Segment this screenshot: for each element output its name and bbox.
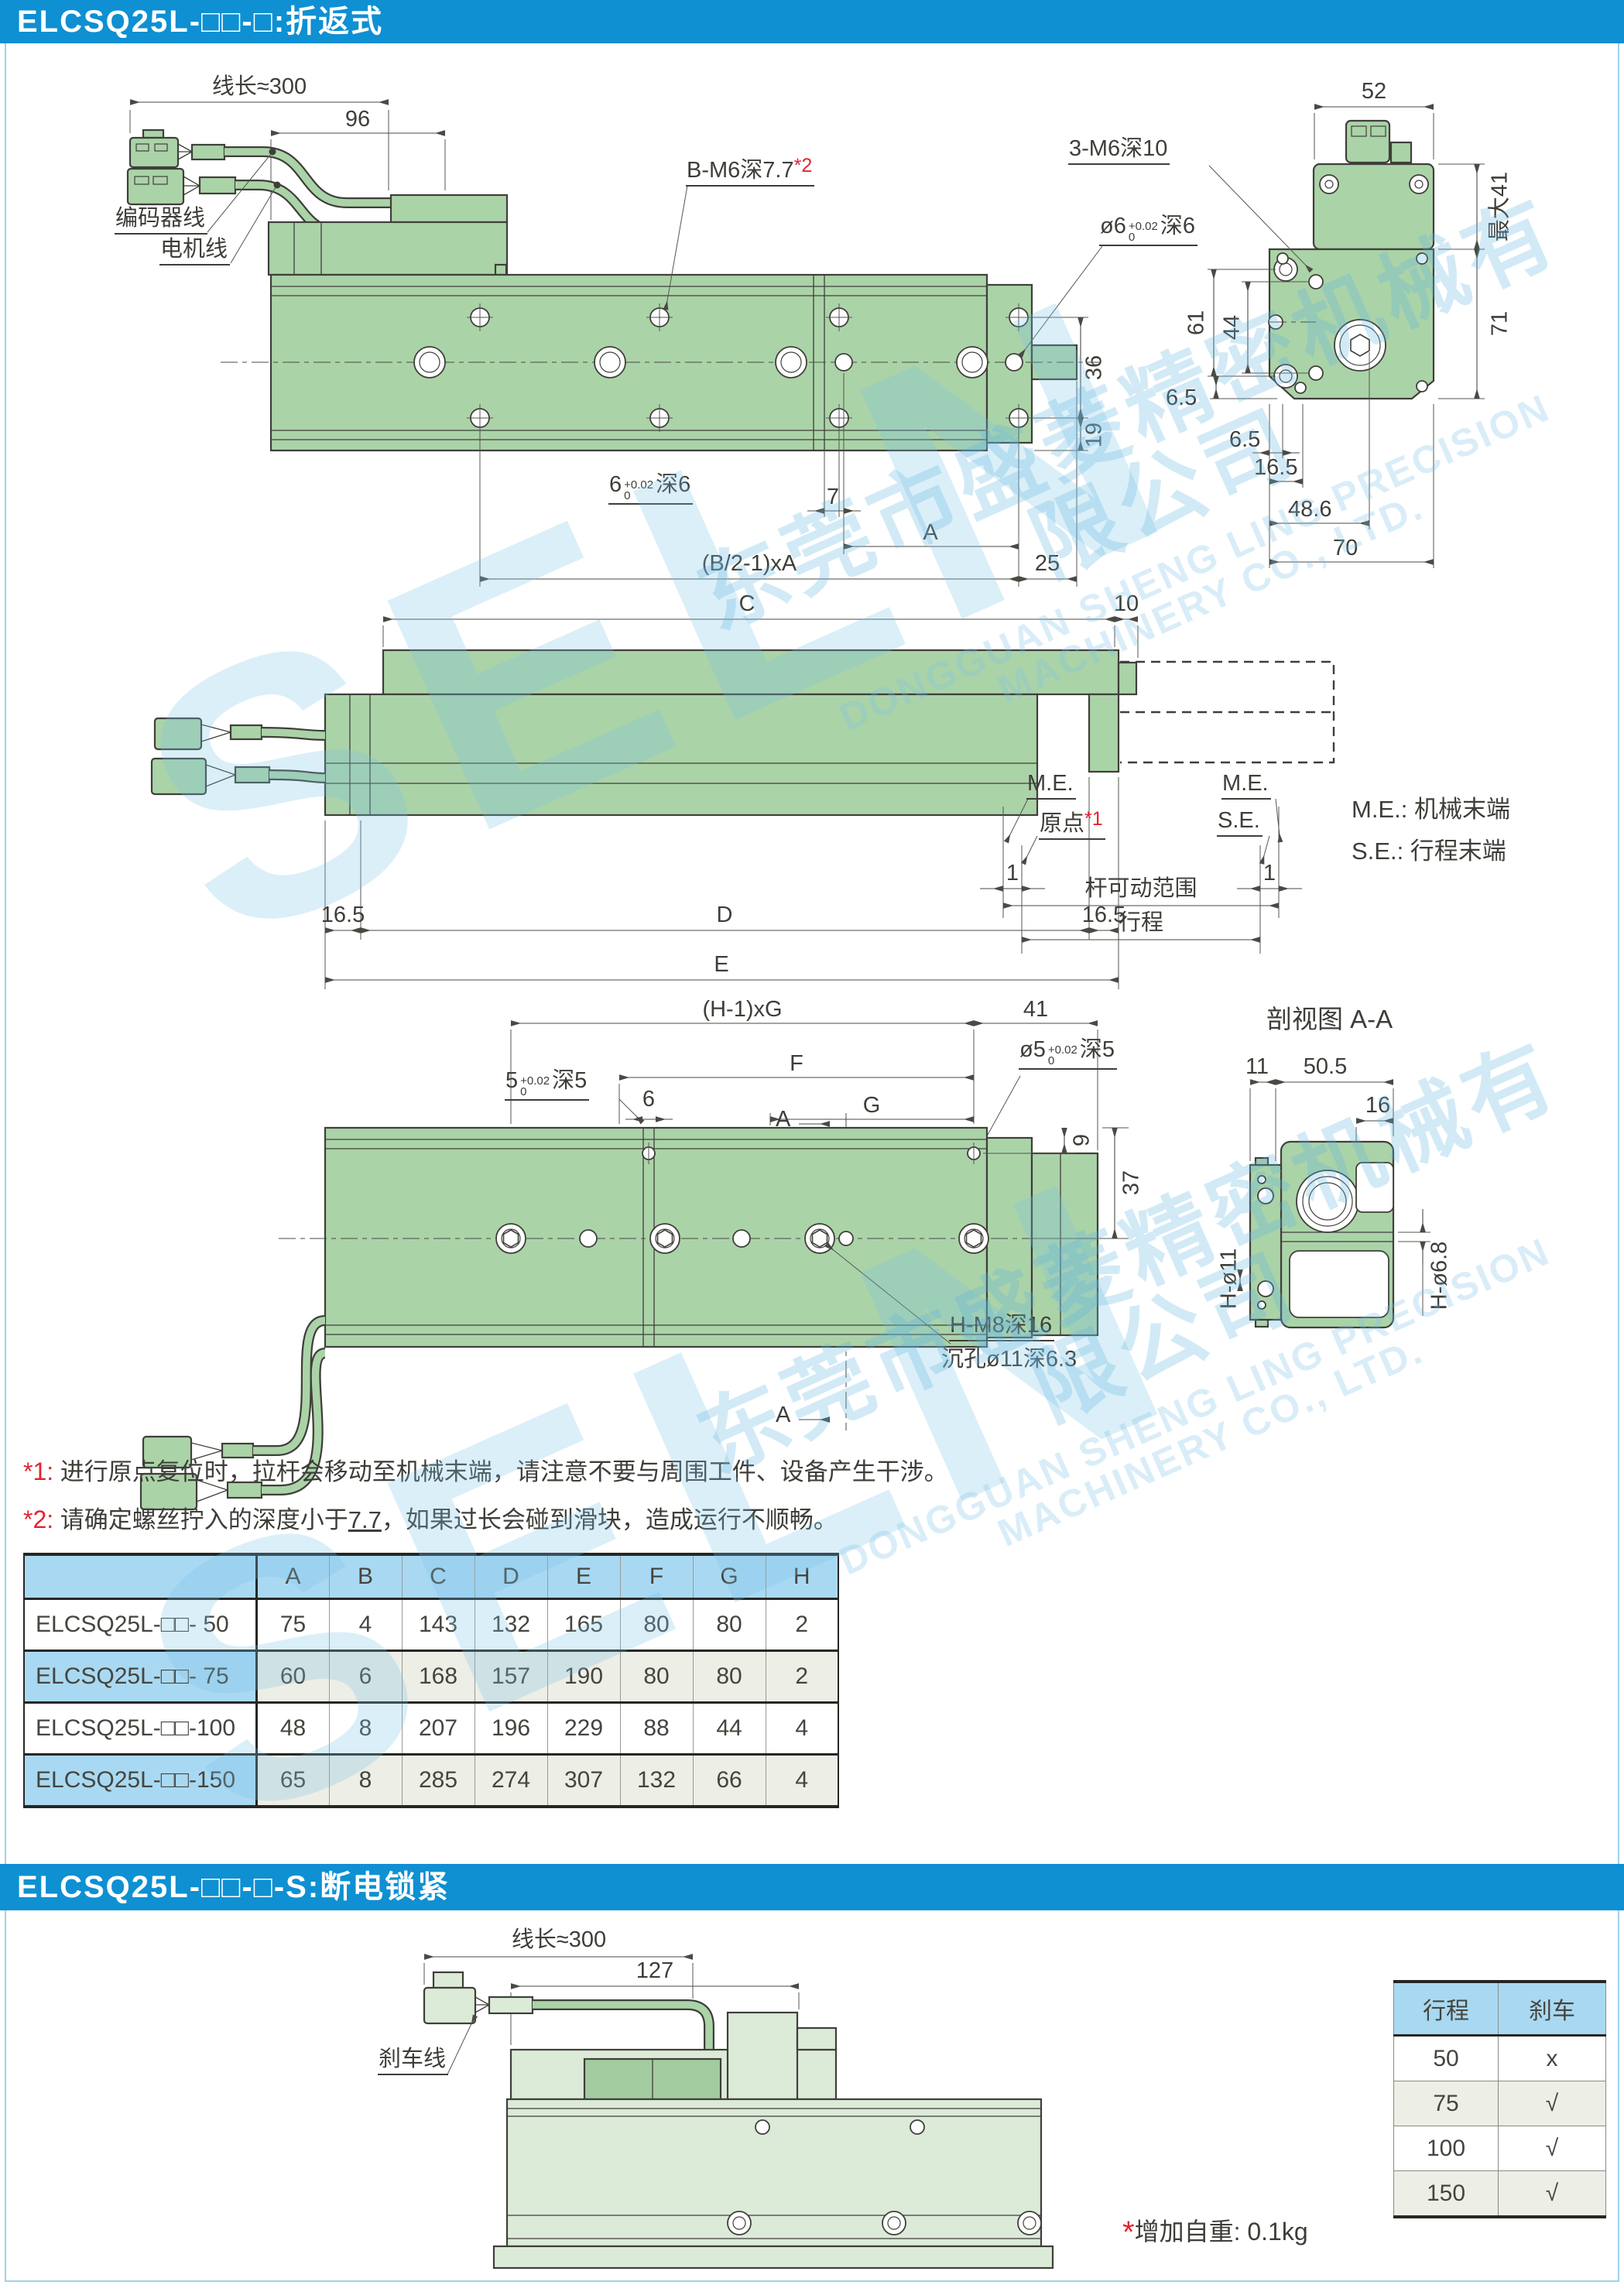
col-h: H <box>766 1554 838 1599</box>
slot-label-5: 5+0.020深5 <box>505 1068 589 1101</box>
dim-f: F <box>790 1051 803 1077</box>
brake-weight-note: *增加自重: 0.1kg <box>1122 2212 1308 2250</box>
thread-label-3m6: 3-M6深10 <box>1068 136 1170 165</box>
dim-48-6: 48.6 <box>1288 497 1331 522</box>
col-d: D <box>475 1554 547 1599</box>
dim-127: 127 <box>636 1958 673 1984</box>
dim-25: 25 <box>1035 551 1060 577</box>
section-mark-bottom: A <box>776 1403 790 1428</box>
dim-1-right: 1 <box>1263 861 1276 886</box>
top-view-drawing <box>128 102 1102 587</box>
dim-c: C <box>739 591 755 617</box>
encoder-connector <box>130 130 224 167</box>
brake-row-150: 150 √ <box>1394 2171 1606 2218</box>
dim-16-5-right: 16.5 <box>1082 903 1125 928</box>
side-view-cables <box>152 718 325 794</box>
pin-hole-label-o6: ø6+0.020深6 <box>1099 214 1197 246</box>
dim-e: E <box>714 952 728 978</box>
dim-16: 16 <box>1365 1093 1390 1119</box>
dim-19: 19 <box>1081 423 1107 447</box>
col-f: F <box>620 1554 693 1599</box>
section1-title: ELCSQ25L-□□-□:折返式 <box>17 5 383 39</box>
brake-option-table: 行程 刹车 50 x 75 √ 100 √ 150 √ <box>1393 1980 1606 2218</box>
table-row-150: ELCSQ25L-□□-150 65 8 285 274 307 132 66 … <box>24 1755 838 1807</box>
brake-table-header-row: 行程 刹车 <box>1394 1982 1606 2036</box>
slot-label-6: 6+0.020深6 <box>608 472 693 505</box>
encoder-cable-label: 编码器线 <box>115 206 207 235</box>
note-2: *2: 请确定螺丝拧入的深度小于7.7，如果过长会碰到滑块，造成运行不顺畅。 <box>23 1500 838 1535</box>
dim-37: 37 <box>1119 1170 1144 1195</box>
model-cell: ELCSQ25L-□□- 50 <box>24 1599 256 1651</box>
dim-d: D <box>717 903 733 928</box>
section2-title: ELCSQ25L-□□-□-S:断电锁紧 <box>17 1870 450 1904</box>
brake-body <box>494 2013 1053 2268</box>
section-view-title: 剖视图 A-A <box>1266 1005 1393 1034</box>
dim-max41: 最大41 <box>1487 172 1513 242</box>
dim-70: 70 <box>1333 536 1358 561</box>
thread-label-bm6: B-M6深7.7*2 <box>686 155 814 187</box>
motor-cable-label: 电机线 <box>159 237 230 265</box>
col-e: E <box>547 1554 620 1599</box>
section-shape <box>1250 1142 1393 1327</box>
brake-view-drawing <box>424 1957 1053 2268</box>
col-g: G <box>693 1554 766 1599</box>
dim-pitch-top: (B/2-1)xA <box>702 551 797 577</box>
dimension-table-corner <box>24 1554 256 1599</box>
dim-7: 7 <box>827 485 839 510</box>
table-row-75: ELCSQ25L-□□- 75 60 6 168 157 190 80 80 2 <box>24 1651 838 1703</box>
dim-50-5: 50.5 <box>1304 1054 1347 1080</box>
dim-6-5b: 6.5 <box>1229 427 1260 453</box>
bottom-view-drawing <box>141 1023 1129 1509</box>
pin-hole-label-o5: ø5+0.020深5 <box>1019 1037 1117 1070</box>
table-row-50: ELCSQ25L-□□- 50 75 4 143 132 165 80 80 2 <box>24 1599 838 1651</box>
brake-row-50: 50 x <box>1394 2036 1606 2081</box>
dim-44: 44 <box>1219 315 1245 340</box>
model-cell: ELCSQ25L-□□- 75 <box>24 1651 256 1703</box>
legend-me: M.E.: 机械末端 <box>1352 796 1510 824</box>
table-row-100: ELCSQ25L-□□-100 48 8 207 196 229 88 44 4 <box>24 1703 838 1755</box>
model-cell: ELCSQ25L-□□-150 <box>24 1755 256 1807</box>
datasheet-page: { "wm": { "brand": "SELN", "cn": "东莞市盛菱精… <box>0 0 1624 2285</box>
dim-52: 52 <box>1362 79 1386 104</box>
dim-6-slot: 6 <box>642 1087 655 1112</box>
brake-connector <box>424 1972 709 2062</box>
section-mark-top: A <box>776 1107 790 1132</box>
dim-1-left: 1 <box>1006 861 1019 886</box>
brake-row-75: 75 √ <box>1394 2081 1606 2126</box>
side-view-body <box>325 650 1334 815</box>
dim-96: 96 <box>345 107 370 132</box>
dimension-table-header-row: A B C D E F G H <box>24 1554 838 1599</box>
brake-cable-label: 刹车线 <box>378 2047 448 2075</box>
dim-pitch-bottom: (H-1)xG <box>702 997 782 1023</box>
me-left-label: M.E. <box>1026 771 1076 800</box>
brake-cable-length-dim: 线长≈300 <box>512 1927 606 1953</box>
brake-col-header: 刹车 <box>1499 1982 1606 2036</box>
dim-71: 71 <box>1487 311 1513 336</box>
dim-61: 61 <box>1184 310 1209 335</box>
dim-9: 9 <box>1069 1134 1095 1146</box>
rod-range-label: 杆可动范围 <box>1084 876 1197 902</box>
col-c: C <box>402 1554 475 1599</box>
col-b: B <box>329 1554 402 1599</box>
me-right-label: M.E. <box>1221 771 1271 800</box>
model-cell: ELCSQ25L-□□-100 <box>24 1703 256 1755</box>
cable-length-dim: 线长≈300 <box>212 74 307 100</box>
dim-36: 36 <box>1081 355 1107 380</box>
engineering-drawings: .st{fill:#abd3a8;stroke:#3f3f3a;stroke-w… <box>0 0 1624 2285</box>
legend-se: S.E.: 行程末端 <box>1352 838 1506 865</box>
note-1: *1: 进行原点复位时，拉杆会移动至机械末端，请注意不要与周围工件、设备产生干涉… <box>23 1452 948 1487</box>
thread-label-m8: H-M8深16 <box>949 1313 1054 1341</box>
section-view-drawing <box>1240 1082 1430 1327</box>
stroke-col-header: 行程 <box>1394 1982 1499 2036</box>
dim-a: A <box>923 520 937 546</box>
dim-g: G <box>863 1093 881 1119</box>
dimension-table: A B C D E F G H ELCSQ25L-□□- 50 75 4 143… <box>23 1553 839 1808</box>
motor-connector <box>128 169 235 204</box>
end-view-drawing <box>1208 107 1485 568</box>
section1-header: ELCSQ25L-□□-□:折返式 <box>0 0 1624 43</box>
brake-row-100: 100 √ <box>1394 2126 1606 2171</box>
dim-41: 41 <box>1023 997 1048 1023</box>
origin-label: 原点*1 <box>1039 808 1105 840</box>
dim-16-5-end: 16.5 <box>1254 455 1297 481</box>
section2-header: ELCSQ25L-□□-□-S:断电锁紧 <box>0 1864 1624 1910</box>
dim-16-5-left: 16.5 <box>321 903 365 928</box>
se-label: S.E. <box>1217 808 1263 837</box>
col-a: A <box>256 1554 329 1599</box>
dim-11: 11 <box>1245 1054 1269 1080</box>
label-h-o11: H-ø11 <box>1216 1249 1242 1309</box>
counterbore-label: 沉孔ø11深6.3 <box>941 1347 1077 1372</box>
dim-10: 10 <box>1114 591 1139 617</box>
end-view-connector <box>1346 121 1411 163</box>
label-h-o6-8: H-ø6.8 <box>1427 1242 1452 1310</box>
dim-6-5a: 6.5 <box>1166 385 1197 411</box>
